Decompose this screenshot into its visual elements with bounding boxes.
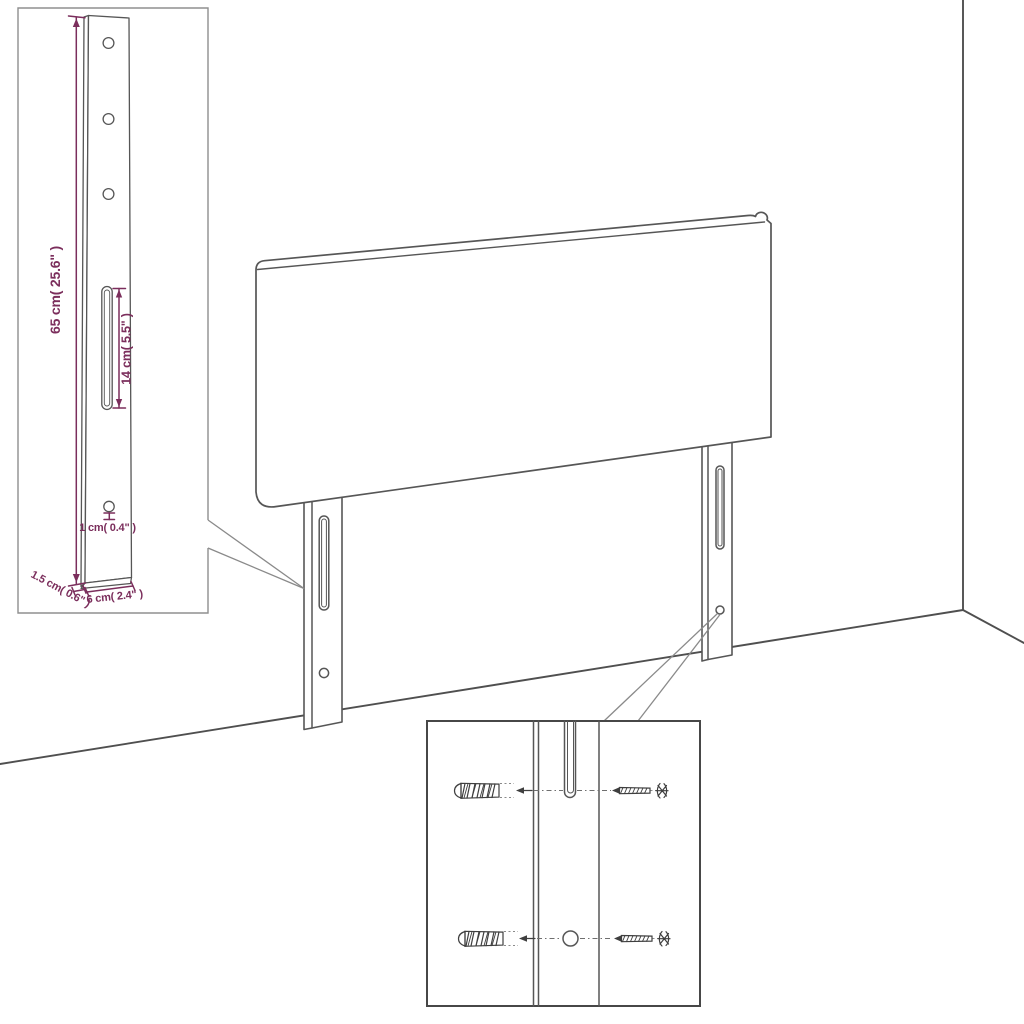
headboard-panel bbox=[256, 212, 771, 507]
assembly-diagram: 65 cm( 25.6" ) 14 cm( 5.5" ) 1 cm( 0.4" … bbox=[0, 0, 1024, 1024]
leg-detail-inset: 65 cm( 25.6" ) 14 cm( 5.5" ) 1 cm( 0.4" … bbox=[18, 8, 208, 613]
right-leg bbox=[702, 430, 732, 661]
floor-line-right bbox=[963, 610, 1024, 643]
callout-left-leg bbox=[208, 520, 304, 589]
dimension-slot-label: 14 cm( 5.5" ) bbox=[120, 313, 134, 384]
left-leg-body bbox=[304, 480, 342, 730]
right-leg-body bbox=[702, 430, 732, 661]
headboard-outline bbox=[256, 212, 771, 507]
diagram-canvas: 65 cm( 25.6" ) 14 cm( 5.5" ) 1 cm( 0.4" … bbox=[0, 0, 1024, 1024]
hardware-inset bbox=[427, 721, 700, 1006]
detail-leg bbox=[81, 16, 132, 589]
dimension-height: 65 cm( 25.6" ) bbox=[47, 16, 86, 586]
dimension-height-label: 65 cm( 25.6" ) bbox=[47, 246, 63, 334]
hardware-inset-border bbox=[427, 721, 700, 1006]
left-leg bbox=[304, 480, 342, 730]
detail-leg-front bbox=[85, 16, 132, 584]
dimension-hole-label: 1 cm( 0.4" ) bbox=[79, 522, 136, 534]
